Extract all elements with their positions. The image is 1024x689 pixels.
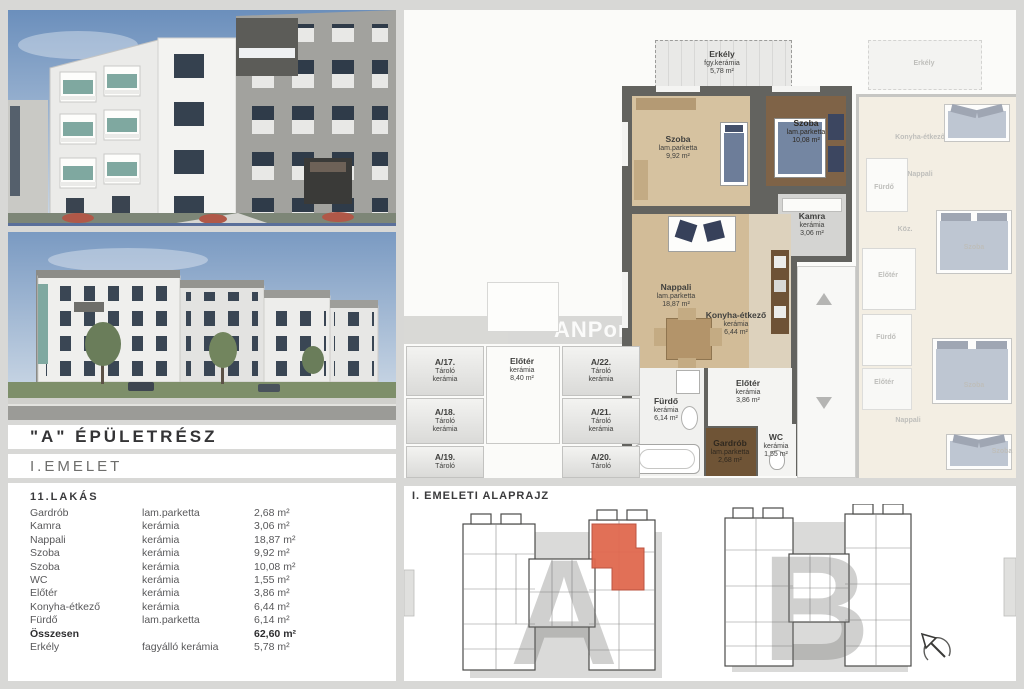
- room-label-wc: WC kerámia 1,55 m²: [764, 433, 789, 459]
- stairwell-outline: [487, 282, 559, 332]
- north-arrow-icon: [922, 634, 950, 660]
- floor-label: I.EMELET: [30, 458, 122, 475]
- window: [622, 272, 628, 328]
- room-label-erkely: Erkély fgy.kerámia 5,78 m²: [704, 50, 740, 76]
- building-section-label: "A" ÉPÜLETRÉSZ: [30, 427, 218, 447]
- room-label-kamra: Kamra kerámia 3,06 m²: [799, 212, 825, 238]
- apartment-floor-plan: ANPont Erkély fgy.kerámia 5,78 m²: [404, 10, 1016, 478]
- room-label-gardrob: Gardrób lam.parketta 2,68 m²: [711, 439, 750, 465]
- room-label-nappali: Nappali lam.parketta 18,87 m²: [657, 283, 696, 309]
- photo-building-exterior: [8, 10, 396, 226]
- neighbor-apartment: Erkély Konyha-étkező Nappali Fürdő Köz. …: [856, 38, 1016, 476]
- brochure-page: "A" ÉPÜLETRÉSZ I.EMELET 11.LAKÁS Gardrób…: [0, 0, 1024, 689]
- unit-data-table: 11.LAKÁS Gardróblam.parketta2,68 m² Kamr…: [8, 483, 396, 681]
- storage-a21: A/21.Tárolókerámia: [562, 398, 640, 444]
- storage-a20: A/20.Tároló: [562, 446, 640, 478]
- table-row-total: Összesen62,60 m²: [8, 628, 396, 641]
- room-label-konyha: Konyha-étkező kerámia 6,44 m²: [706, 311, 766, 337]
- room-label-eloter: Előtér kerámia 3,86 m²: [736, 379, 761, 405]
- room-label-szoba-2: Szoba lam.parketta 10,08 m²: [787, 119, 826, 145]
- window: [772, 86, 820, 92]
- room-label-szoba-1: Szoba lam.parketta 9,92 m²: [659, 135, 698, 161]
- window: [656, 86, 700, 92]
- storage-a18: A/18.Tárolókerámia: [406, 398, 484, 444]
- storage-a17: A/17.Tárolókerámia: [406, 346, 484, 396]
- site-plan-panel: I. EMELETI ALAPRAJZ: [404, 486, 1016, 681]
- building-section-title: "A" ÉPÜLETRÉSZ: [8, 425, 396, 449]
- storage-a19: A/19.Tároló: [406, 446, 484, 478]
- site-plan-map: A B: [404, 504, 1016, 681]
- building-render-2: [8, 232, 396, 420]
- site-plan-title: I. EMELETI ALAPRAJZ: [412, 490, 549, 502]
- common-corridor: [797, 266, 856, 478]
- window: [622, 122, 628, 166]
- room-label-furdo: Fürdő kerámia 6,14 m²: [654, 397, 679, 423]
- storage-a22: A/22.Tárolókerámia: [562, 346, 640, 396]
- table-row: Előtérkerámia3,86 m²: [8, 587, 396, 600]
- table-row: Szobakerámia9,92 m²: [8, 547, 396, 560]
- apartment-title: 11.LAKÁS: [30, 491, 396, 503]
- table-row: Erkélyfagyálló kerámia5,78 m²: [8, 641, 396, 654]
- table-row: Szobakerámia10,08 m²: [8, 561, 396, 574]
- table-row: Kamrakerámia3,06 m²: [8, 520, 396, 533]
- photo-street-view: [8, 232, 396, 420]
- building-render-1: [8, 10, 396, 226]
- table-row: Nappalikerámia18,87 m²: [8, 534, 396, 547]
- floor-title: I.EMELET: [8, 454, 396, 478]
- storage-eloter-label: Előtér kerámia 8,40 m²: [510, 357, 535, 383]
- watermark-letter-b: B: [762, 524, 870, 681]
- table-row: Fürdőlam.parketta6,14 m²: [8, 614, 396, 627]
- room-konyha: [749, 214, 791, 368]
- table-row: WCkerámia1,55 m²: [8, 574, 396, 587]
- table-row: Konyha-étkezőkerámia6,44 m²: [8, 601, 396, 614]
- table-row: Gardróblam.parketta2,68 m²: [8, 507, 396, 520]
